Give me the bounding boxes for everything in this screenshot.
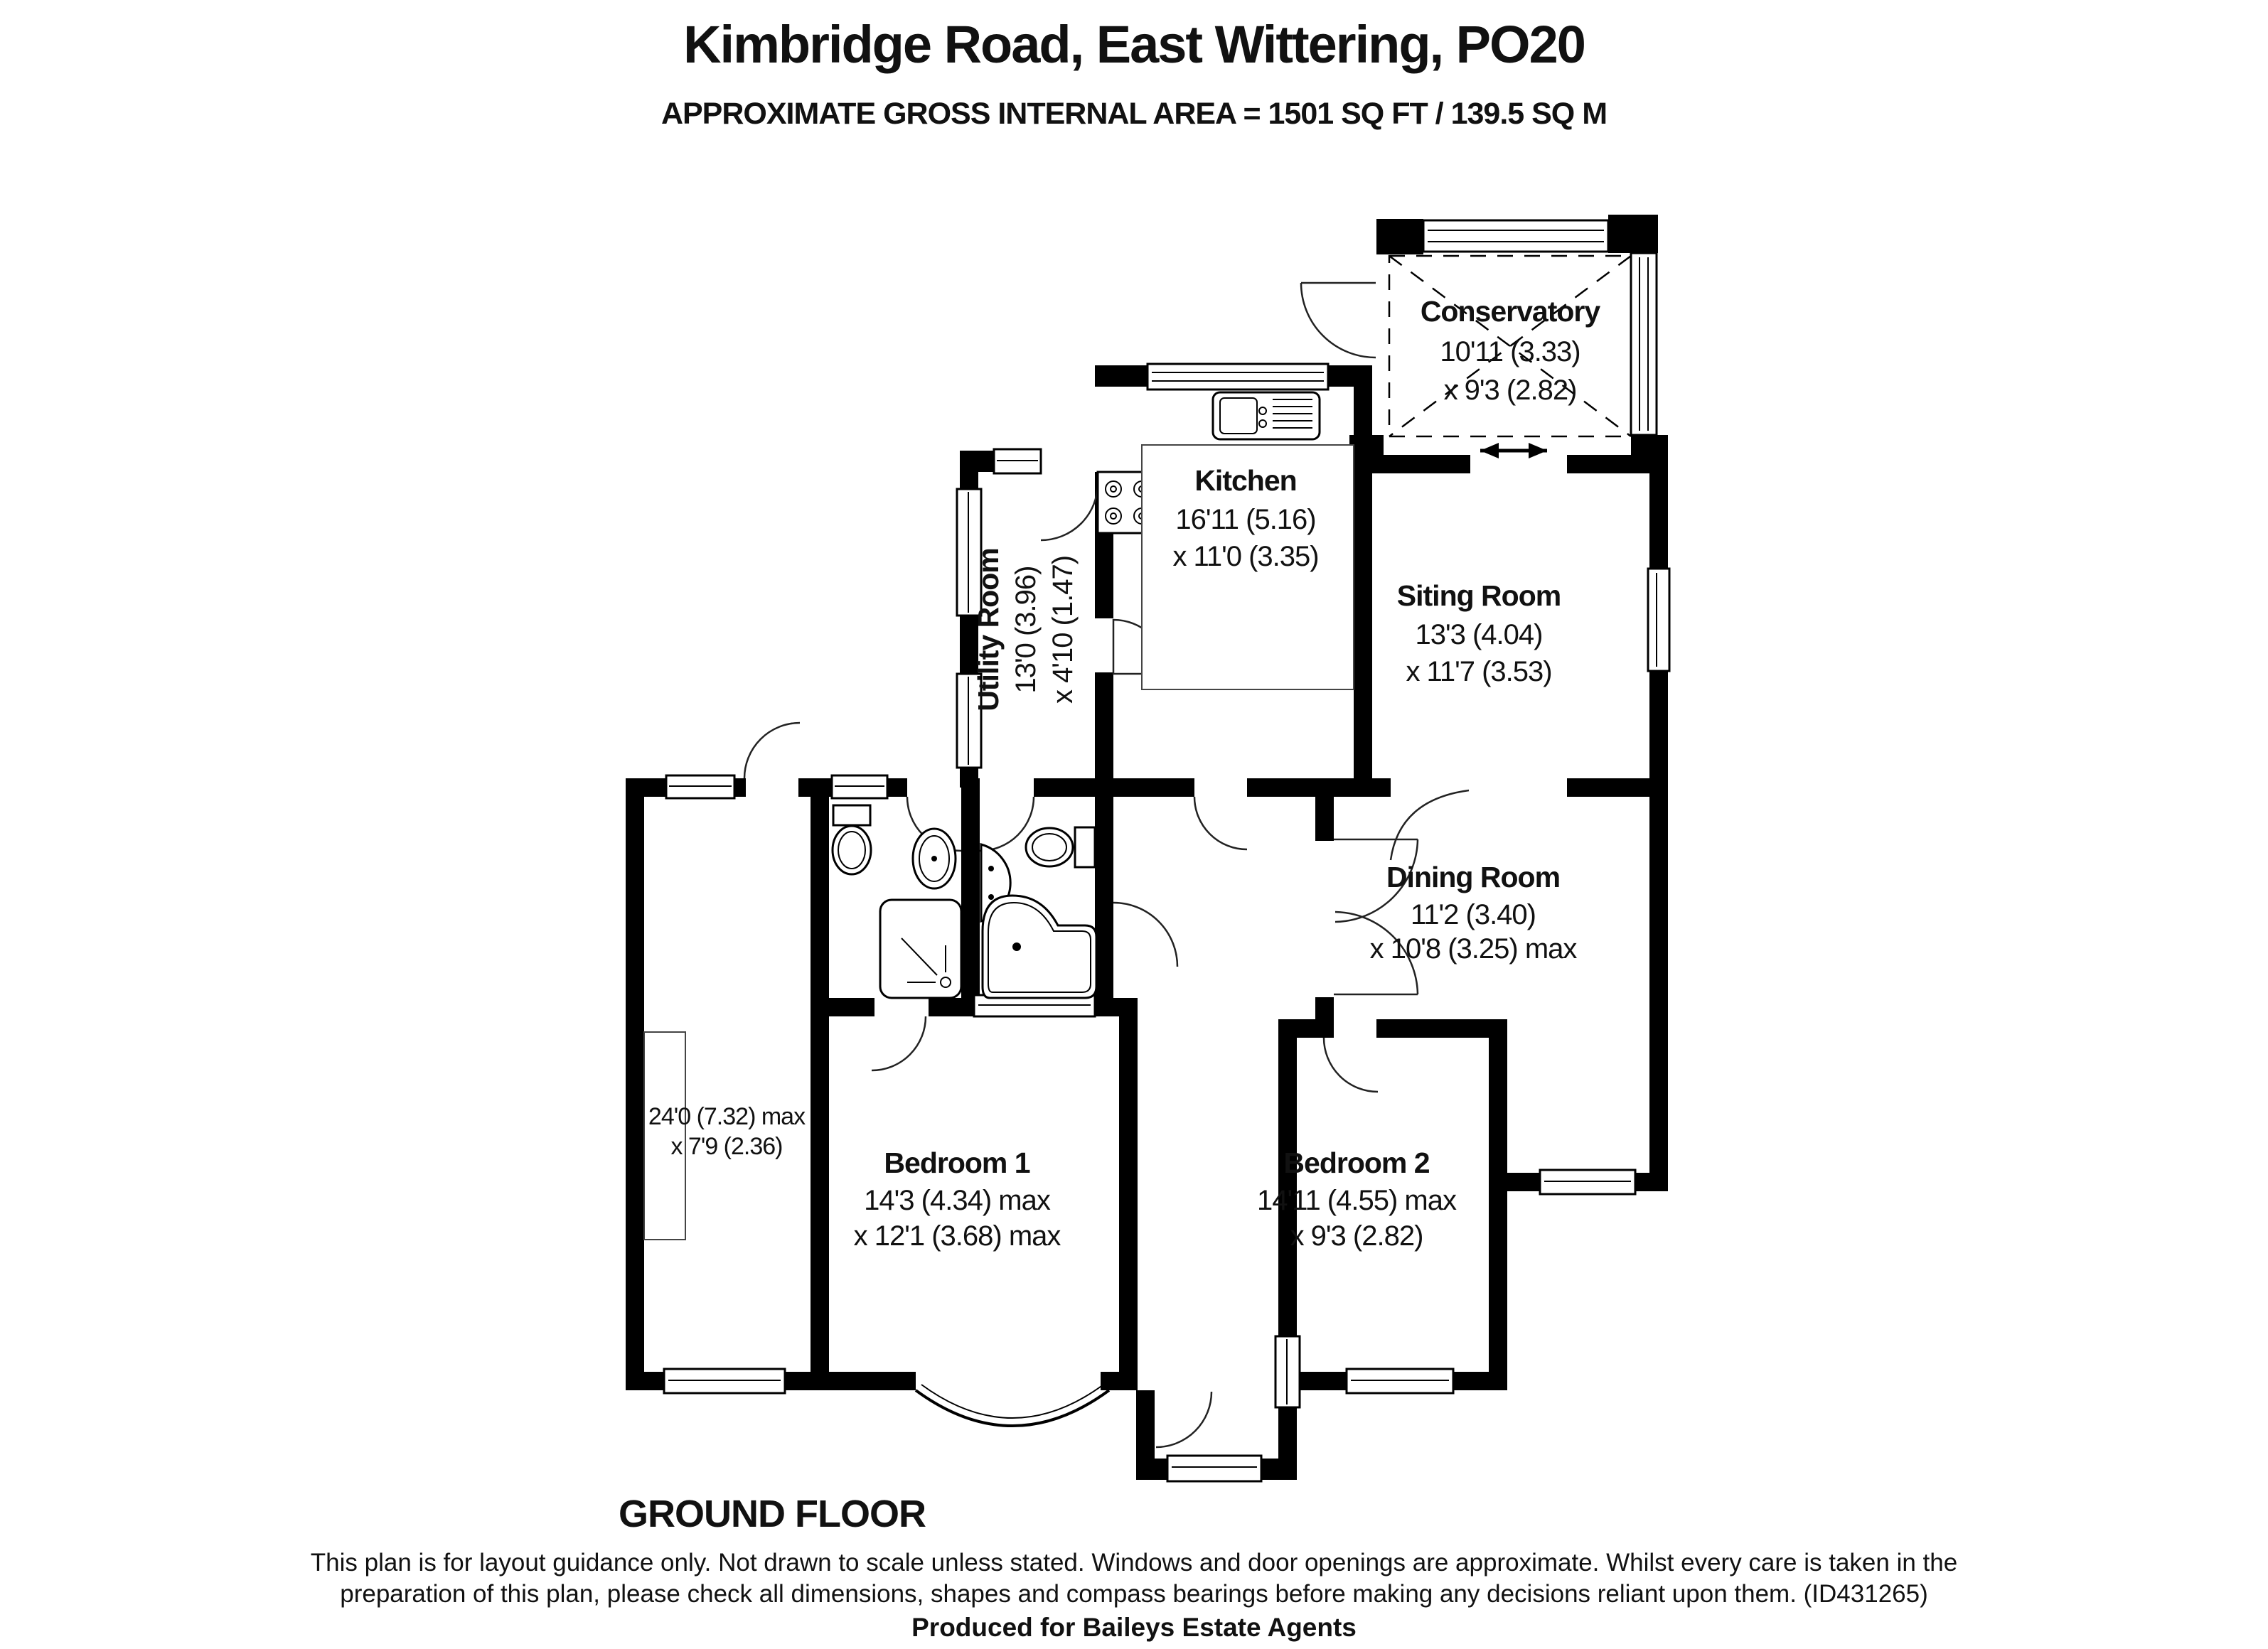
window-porch-bottom	[1167, 1456, 1261, 1481]
svg-text:Kitchen: Kitchen	[1194, 464, 1296, 497]
label-utility: Utility Room 13'0 (3.96) x 4'10 (1.47)	[972, 548, 1079, 711]
svg-text:14'3 (4.34) max: 14'3 (4.34) max	[864, 1185, 1051, 1216]
door-bedroom1	[872, 1016, 926, 1070]
svg-text:x 4'10 (1.47): x 4'10 (1.47)	[1047, 556, 1079, 704]
svg-text:Bedroom 2: Bedroom 2	[1283, 1146, 1429, 1179]
basin-1	[913, 829, 956, 888]
svg-text:x 9'3 (2.82): x 9'3 (2.82)	[1290, 1220, 1423, 1252]
window-porch-side	[1275, 1336, 1300, 1407]
svg-text:x 11'7 (3.53): x 11'7 (3.53)	[1406, 656, 1551, 687]
svg-text:Conservatory: Conservatory	[1421, 295, 1601, 328]
page-title: Kimbridge Road, East Wittering, PO20	[683, 15, 1585, 74]
svg-text:13'0 (3.96): 13'0 (3.96)	[1010, 566, 1042, 694]
disclaimer-line2: preparation of this plan, please check a…	[340, 1580, 1928, 1608]
svg-text:x 10'8 (3.25) max: x 10'8 (3.25) max	[1370, 933, 1578, 965]
svg-text:10'11 (3.33): 10'11 (3.33)	[1440, 336, 1580, 367]
toilet-1	[833, 805, 871, 874]
door-corridor	[1194, 797, 1247, 849]
window-conservatory-top	[1423, 220, 1608, 252]
door-conservatory-side	[1301, 283, 1376, 358]
svg-text:Utility Room: Utility Room	[972, 548, 1005, 711]
floorplan-page: Kimbridge Road, East Wittering, PO20 APP…	[0, 0, 2268, 1649]
produced-by: Produced for Baileys Estate Agents	[911, 1613, 1357, 1642]
kitchen-sink	[1213, 392, 1320, 439]
label-bedroom1: Bedroom 1 14'3 (4.34) max x 12'1 (3.68) …	[854, 1146, 1061, 1252]
svg-text:x 7'9 (2.36): x 7'9 (2.36)	[670, 1133, 782, 1160]
label-dining: Dining Room 11'2 (3.40) x 10'8 (3.25) ma…	[1370, 861, 1578, 965]
window-bedroom2-bottom	[1347, 1369, 1453, 1393]
bath	[983, 896, 1096, 998]
svg-text:13'3 (4.04): 13'3 (4.04)	[1416, 619, 1543, 650]
window-utility-top	[994, 449, 1041, 473]
svg-text:14'11 (4.55) max: 14'11 (4.55) max	[1257, 1185, 1457, 1216]
svg-text:Siting Room: Siting Room	[1397, 579, 1561, 612]
window-garage-top	[666, 775, 734, 798]
door-hall-kitchen	[1113, 903, 1177, 967]
disclaimer-line1: This plan is for layout guidance only. N…	[311, 1549, 1957, 1577]
svg-text:16'11 (5.16): 16'11 (5.16)	[1175, 504, 1315, 535]
door-hall-garage	[744, 723, 800, 778]
svg-text:Bedroom 1: Bedroom 1	[884, 1146, 1029, 1179]
window-dining-bottom	[1540, 1170, 1635, 1194]
door-utility	[1041, 483, 1098, 540]
window-kitchen-top	[1148, 364, 1328, 390]
floorplan-canvas: Kimbridge Road, East Wittering, PO20 APP…	[0, 0, 2268, 1649]
window-garage-bottom	[664, 1369, 785, 1393]
door-bedroom2	[1324, 1038, 1378, 1092]
svg-text:11'2 (3.40): 11'2 (3.40)	[1411, 899, 1536, 930]
svg-text:x 9'3 (2.82): x 9'3 (2.82)	[1444, 375, 1577, 406]
label-sitting: Siting Room 13'3 (4.04) x 11'7 (3.53)	[1397, 579, 1561, 687]
sliding-door-arrow	[1480, 443, 1547, 458]
svg-text:Dining Room: Dining Room	[1386, 861, 1560, 893]
svg-text:24'0 (7.32) max: 24'0 (7.32) max	[648, 1103, 806, 1130]
door-front	[1156, 1392, 1211, 1447]
window-sitting-right	[1648, 569, 1669, 671]
floor-label: GROUND FLOOR	[619, 1493, 926, 1535]
svg-text:x 12'1 (3.68) max: x 12'1 (3.68) max	[854, 1220, 1061, 1252]
label-conservatory: Conservatory 10'11 (3.33) x 9'3 (2.82)	[1421, 295, 1601, 406]
toilet-2	[1026, 827, 1095, 867]
window-conservatory-right	[1631, 253, 1657, 435]
bay-window-bedroom1	[916, 1385, 1109, 1426]
window-hall-top	[832, 775, 887, 798]
shower-1	[880, 900, 961, 998]
page-subtitle: APPROXIMATE GROSS INTERNAL AREA = 1501 S…	[661, 97, 1607, 131]
arch-sitting-dining	[1391, 790, 1469, 860]
svg-text:x 11'0 (3.35): x 11'0 (3.35)	[1172, 541, 1318, 572]
